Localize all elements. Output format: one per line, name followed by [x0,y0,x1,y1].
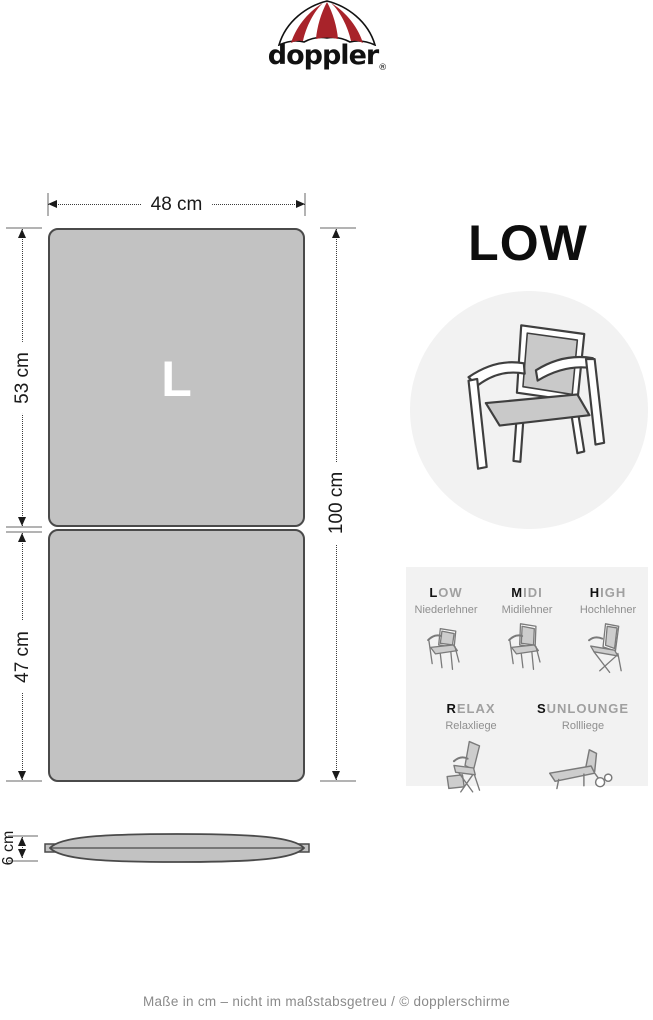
arrow-left-icon [48,200,57,208]
doppler-logo: doppler® [252,0,402,73]
chair-illustration-circle [410,291,648,529]
type-midi-subtitle: Midilehner [488,604,566,616]
seat-dimension-label: 47 cm [12,621,34,693]
low-back-chair-icon [434,305,624,515]
width-dimension-label: 48 cm [141,194,213,216]
chair-low-icon [418,623,474,675]
thickness-dimension-label: 6 cm [0,825,18,872]
arrow-down-icon [18,771,26,780]
type-low-subtitle: Niederlehner [407,604,485,616]
type-sunlounge-label: SUNLOUNGE [534,701,632,716]
type-sunlounge: SUNLOUNGE Rollliege [534,701,632,802]
type-high-label: HIGH [569,585,647,600]
arrow-right-icon [296,200,305,208]
type-midi: MIDI Midilehner [488,585,566,684]
dim-tick [6,526,42,528]
total-dimension-label: 100 cm [326,462,348,544]
chair-relax-icon [442,739,500,797]
chair-types-row-1: LOW Niederlehner MIDI Midilehner [406,585,648,684]
arrow-up-icon [18,229,26,238]
chair-high-icon [580,623,636,679]
cushion-seat-section [48,529,305,782]
lounger-sunlounge-icon [544,739,622,793]
back-dimension-label: 53 cm [12,342,34,414]
dim-tick [6,780,42,782]
arrow-down-icon [332,771,340,780]
width-dimension-line: 48 cm [48,204,305,205]
cushion-side-view [44,831,310,865]
type-relax: RELAX Relaxliege [422,701,520,802]
registered-mark: ® [378,63,386,73]
cushion-back-section: L [48,228,305,527]
brand-name: doppler® [252,42,402,73]
thickness-dimension-line [22,837,23,858]
chair-types-panel: LOW Niederlehner MIDI Midilehner [406,567,648,786]
arrow-up-icon [18,837,26,846]
arrow-up-icon [332,229,340,238]
arrow-up-icon [18,533,26,542]
dim-tick [320,780,356,782]
arrow-down-icon [18,849,26,858]
type-sunlounge-subtitle: Rollliege [534,720,632,732]
arrow-down-icon [18,517,26,526]
type-relax-subtitle: Relaxliege [422,720,520,732]
type-high-subtitle: Hochlehner [569,604,647,616]
chair-midi-icon [499,623,555,675]
size-letter: L [50,354,303,404]
type-low: LOW Niederlehner [407,585,485,684]
type-midi-label: MIDI [488,585,566,600]
chair-type-heading: LOW [406,218,650,268]
type-low-label: LOW [407,585,485,600]
type-relax-label: RELAX [422,701,520,716]
type-high: HIGH Hochlehner [569,585,647,684]
product-dimension-sheet: doppler® 48 cm L 53 cm 47 cm 100 cm [0,0,653,1020]
chair-types-row-2: RELAX Relaxliege SUNLOUNGE Rollliege [406,701,648,802]
footer-note: Maße in cm – nicht im maßstabsgetreu / ©… [0,994,653,1009]
